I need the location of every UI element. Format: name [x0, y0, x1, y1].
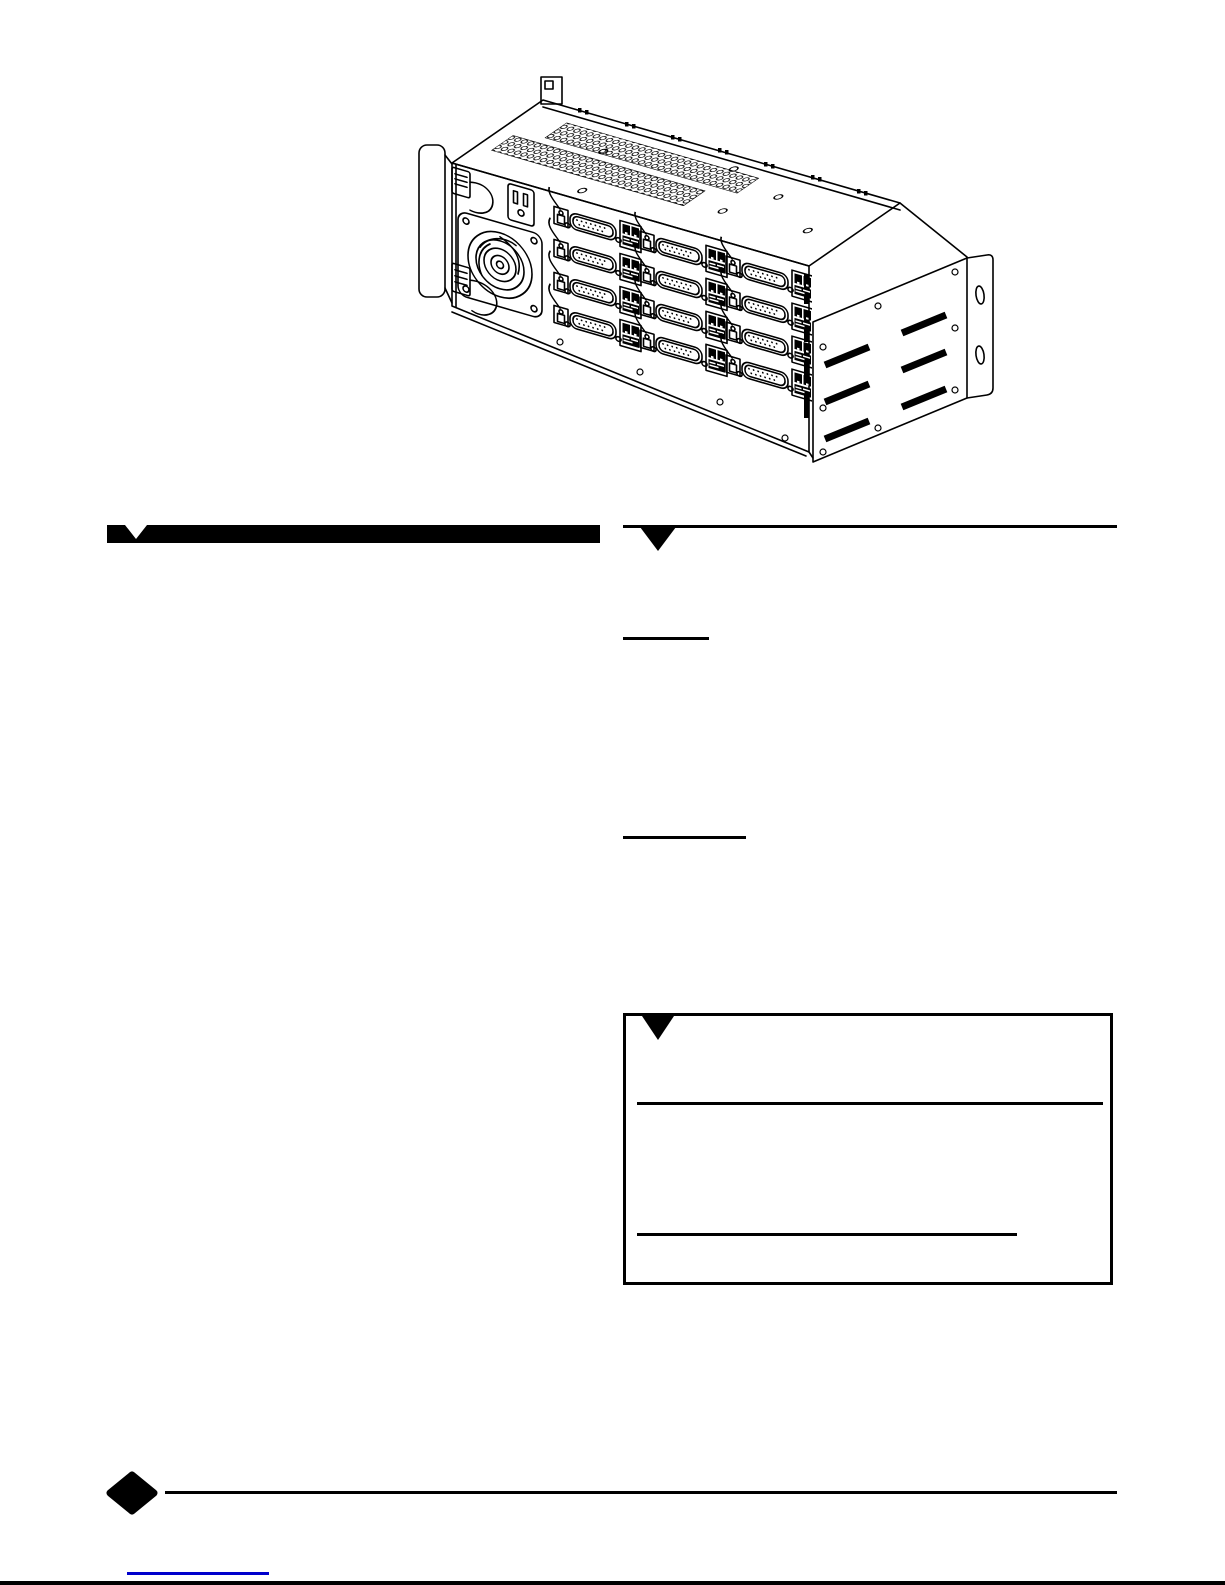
- rear-top-rail: [543, 107, 900, 210]
- text-underline: [623, 637, 709, 640]
- manual-page: [0, 0, 1225, 1585]
- text-underline: [623, 836, 746, 839]
- left-rack-ear: [419, 145, 452, 303]
- banner-notch-marker: [125, 525, 147, 539]
- chassis-rear-illustration: [410, 60, 1010, 485]
- page-bottom-bar: [0, 1581, 1225, 1585]
- footer-link-underline[interactable]: [127, 1572, 269, 1575]
- right-column-header-rule: [623, 525, 1117, 528]
- power-cable: [470, 181, 493, 217]
- footer-diamond-icon: [106, 1471, 159, 1516]
- connector-modules: [549, 185, 813, 401]
- rear-panel: [452, 157, 813, 456]
- power-supply-section: [452, 167, 542, 332]
- left-column-header-banner: [107, 525, 600, 543]
- right-rack-ear: [967, 255, 993, 398]
- note-box-rule: [637, 1102, 1103, 1105]
- footer-rule: [165, 1491, 1117, 1494]
- note-box-rule: [637, 1233, 1017, 1236]
- vent-slots: [825, 315, 946, 439]
- ac-outlet: [508, 183, 534, 227]
- note-box: [623, 1013, 1113, 1285]
- right-side-panel: [809, 203, 967, 462]
- cooling-fan: [458, 211, 542, 319]
- down-triangle-icon: [640, 527, 676, 551]
- down-triangle-icon: [642, 1016, 674, 1040]
